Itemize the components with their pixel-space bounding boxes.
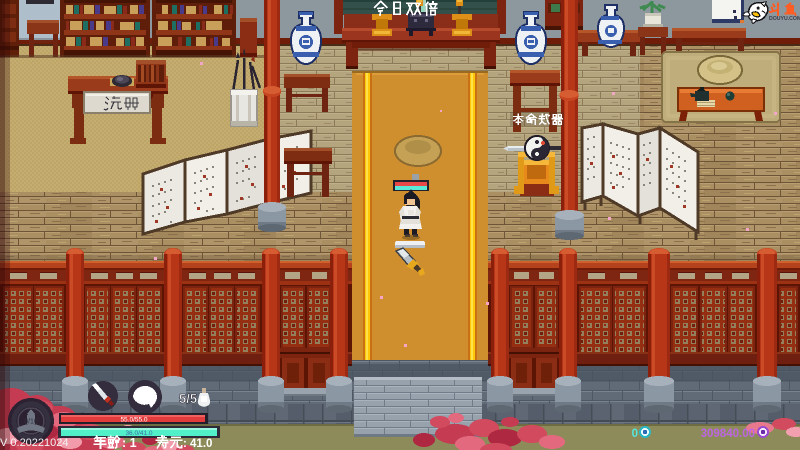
svg-text:0: 0 bbox=[632, 428, 638, 440]
svg-text:: 41.0: : 41.0 bbox=[183, 438, 212, 450]
svg-text:0/10: 0/10 bbox=[24, 419, 38, 426]
svg-text:309840.00: 309840.00 bbox=[701, 428, 755, 440]
svg-text:DOUYU.COM: DOUYU.COM bbox=[769, 16, 800, 22]
svg-text:V 0.20221024: V 0.20221024 bbox=[0, 437, 69, 449]
svg-text:5/5: 5/5 bbox=[179, 391, 197, 406]
svg-text:55.0/55.0: 55.0/55.0 bbox=[120, 417, 147, 424]
svg-text:: 1: : 1 bbox=[122, 436, 137, 450]
